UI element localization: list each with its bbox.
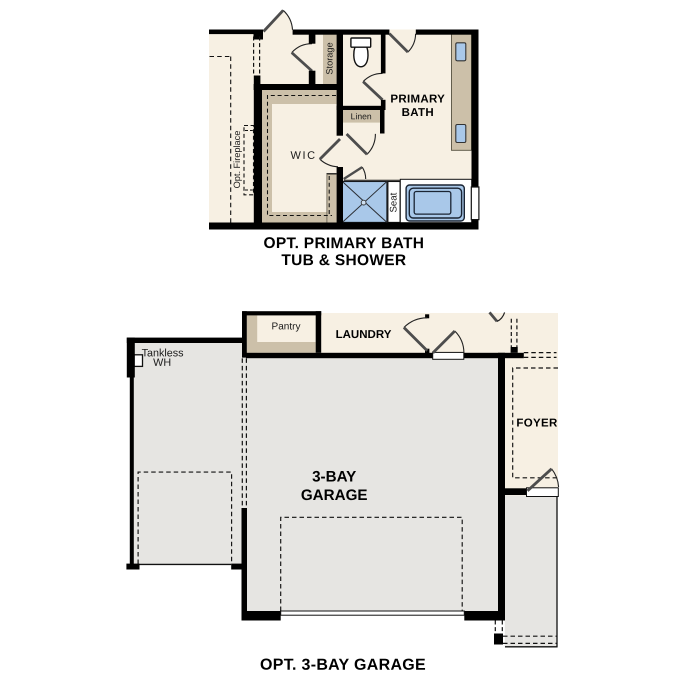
svg-text:Opt. Fireplace: Opt. Fireplace [232,131,242,189]
svg-text:BATH: BATH [402,107,434,119]
svg-text:WH: WH [153,357,171,369]
svg-text:GARAGE: GARAGE [301,487,368,504]
svg-text:Seat: Seat [389,192,400,212]
svg-text:OPT. PRIMARY BATH: OPT. PRIMARY BATH [264,235,425,252]
svg-text:OPT. 3-BAY GARAGE: OPT. 3-BAY GARAGE [260,657,426,674]
svg-text:3-BAY: 3-BAY [312,469,356,486]
svg-text:Linen: Linen [351,111,372,121]
svg-text:WIC: WIC [291,150,317,162]
svg-text:Pantry: Pantry [272,321,301,332]
svg-text:PRIMARY: PRIMARY [390,94,445,106]
svg-text:LAUNDRY: LAUNDRY [336,329,392,341]
svg-text:FOYER: FOYER [516,418,558,430]
svg-text:TUB & SHOWER: TUB & SHOWER [281,252,406,269]
svg-text:Storage: Storage [325,42,335,74]
